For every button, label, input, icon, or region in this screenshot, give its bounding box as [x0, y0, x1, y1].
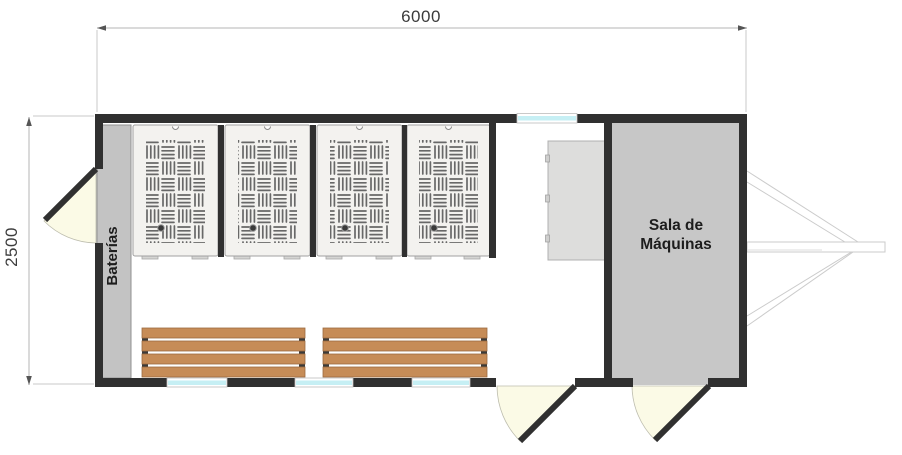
locker-divider	[218, 125, 224, 257]
locker-divider	[402, 125, 407, 257]
window-bottom-3	[412, 378, 470, 387]
locker-knob	[250, 225, 257, 232]
window-top	[517, 114, 577, 124]
locker-4	[407, 125, 490, 256]
locker-vent-notch	[265, 127, 271, 130]
wall-bottom	[575, 378, 633, 387]
locker-knob	[158, 225, 165, 232]
width-dimension-label: 6000	[401, 7, 441, 26]
dim-arrow-top	[26, 117, 32, 126]
dim-arrow-bottom	[26, 376, 32, 385]
wall-bottom	[95, 378, 167, 387]
wall-bottom	[470, 378, 496, 387]
wall-right	[739, 114, 747, 387]
floor-plan-drawing: 6000 2500	[0, 0, 902, 455]
locker-vent-notch	[173, 127, 179, 130]
locker-end-wall	[489, 123, 496, 258]
locker-1	[133, 125, 218, 256]
locker-vent-notch	[357, 127, 363, 130]
wall-top-right	[577, 114, 747, 123]
dim-arrow-left	[97, 25, 106, 31]
floor-plan-canvas: 6000 2500	[0, 0, 902, 455]
dim-arrow-right	[738, 25, 747, 31]
door-bottom-1	[497, 386, 575, 441]
door-bottom-2	[632, 386, 709, 440]
locker-divider	[310, 125, 316, 257]
wall-left-lower	[95, 243, 103, 387]
dimension-height: 2500	[2, 116, 94, 385]
locker-knob	[431, 225, 438, 232]
wall-bottom	[353, 378, 412, 387]
wall-top-left	[95, 114, 517, 123]
battery-area-label: Baterías	[104, 226, 121, 285]
wall-machine-room	[604, 123, 612, 378]
machine-room-threshold	[633, 378, 708, 385]
wall-left-upper	[95, 114, 103, 169]
locker-3	[317, 125, 402, 256]
svg-text:Sala de: Sala de	[649, 217, 704, 234]
locker-2	[225, 125, 310, 256]
window-bottom-1	[167, 378, 227, 387]
height-dimension-label: 2500	[2, 227, 21, 267]
wall-bottom	[227, 378, 295, 387]
equipment-cabinet	[546, 141, 606, 260]
dimension-width: 6000	[97, 7, 747, 112]
svg-text:Máquinas: Máquinas	[640, 236, 711, 253]
locker-knob	[342, 225, 349, 232]
door-left	[44, 169, 96, 243]
trailer-hitch	[747, 171, 885, 326]
locker-vent-notch	[446, 127, 452, 130]
window-bottom-2	[295, 378, 353, 387]
